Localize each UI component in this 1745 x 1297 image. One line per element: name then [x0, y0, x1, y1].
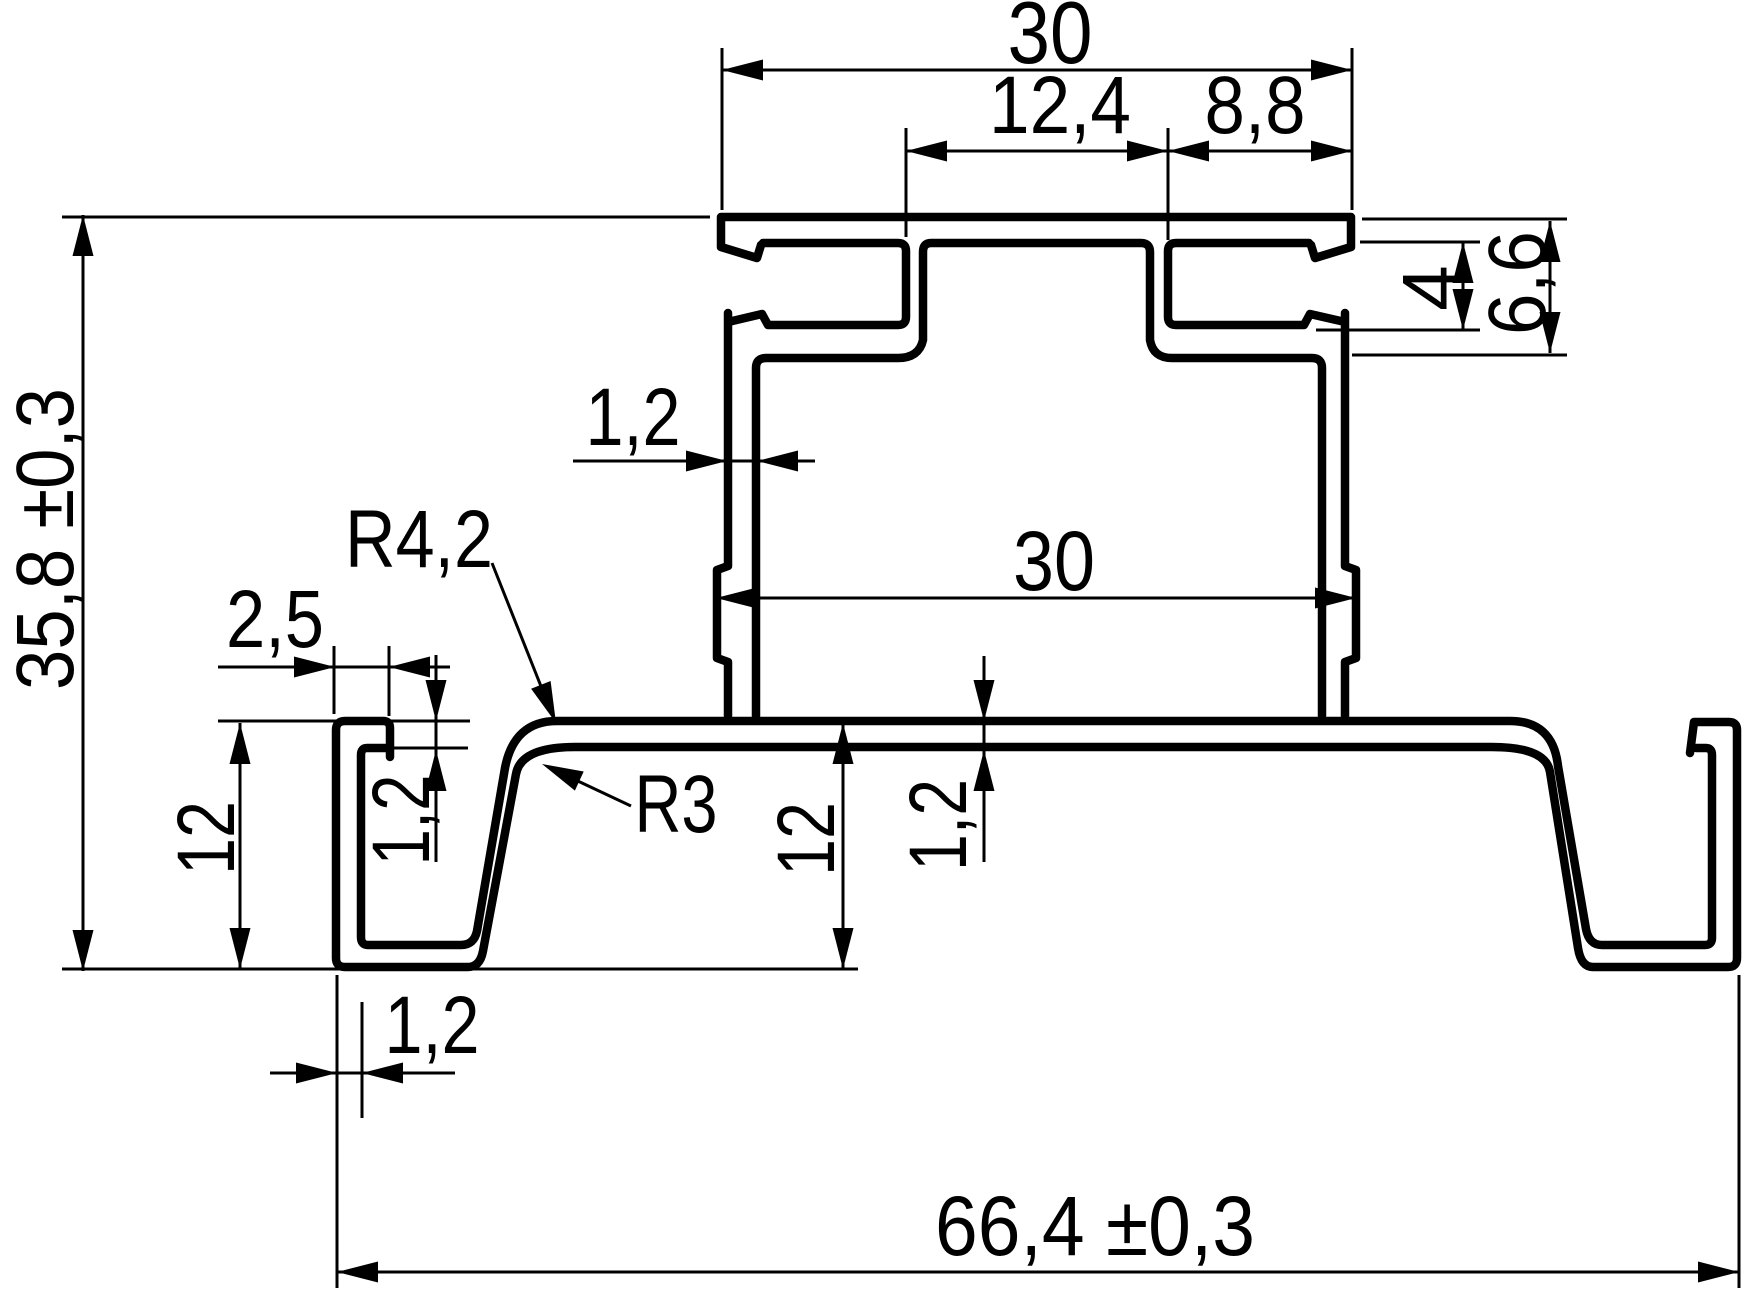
- svg-text:4: 4: [1386, 265, 1477, 311]
- svg-text:35,8 ±0,3: 35,8 ±0,3: [0, 388, 91, 690]
- svg-text:12: 12: [161, 801, 252, 875]
- svg-text:30: 30: [1013, 514, 1095, 608]
- svg-text:1,2: 1,2: [586, 372, 681, 463]
- svg-text:R3: R3: [635, 759, 718, 850]
- svg-text:R4,2: R4,2: [345, 494, 493, 585]
- svg-text:8,8: 8,8: [1205, 60, 1306, 151]
- svg-text:1,2: 1,2: [356, 775, 447, 866]
- svg-text:12: 12: [761, 802, 852, 876]
- svg-text:6,6: 6,6: [1472, 231, 1563, 335]
- svg-text:2,5: 2,5: [226, 574, 324, 665]
- svg-text:1,2: 1,2: [385, 980, 480, 1071]
- svg-text:1,2: 1,2: [893, 779, 984, 871]
- svg-text:66,4 ±0,3: 66,4 ±0,3: [935, 1179, 1255, 1273]
- svg-text:12,4: 12,4: [989, 60, 1131, 151]
